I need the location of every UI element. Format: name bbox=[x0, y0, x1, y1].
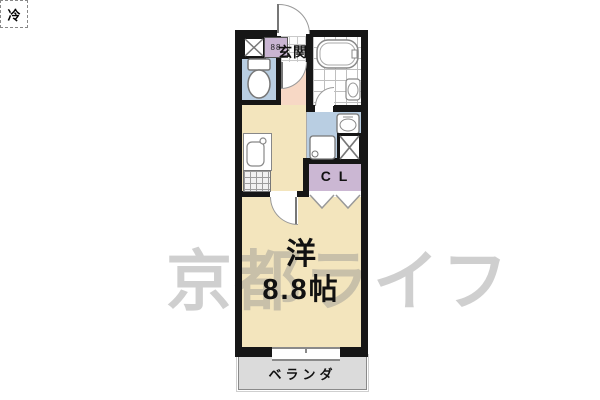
closet-label: C L bbox=[309, 168, 361, 184]
veranda: ベランダ bbox=[238, 356, 367, 390]
wall-bottom-right bbox=[340, 347, 368, 357]
mainroom-door-leaf bbox=[295, 197, 297, 224]
closet-folding-door-icon bbox=[309, 194, 361, 210]
front-door-swing-arc bbox=[279, 4, 310, 34]
main-room-type: 洋 bbox=[241, 238, 361, 272]
vanity-sink-icon bbox=[336, 113, 360, 135]
pipe-space-entry-icon bbox=[242, 36, 266, 59]
pipe-space-washroom-icon bbox=[337, 133, 362, 162]
wall-top-right bbox=[310, 30, 368, 37]
toilet-icon bbox=[244, 58, 274, 100]
refrigerator-space: 冷 bbox=[0, 0, 28, 28]
genkan-label: 玄関 bbox=[278, 42, 308, 62]
wall-toilet-bottom bbox=[241, 100, 281, 105]
bathtub-icon bbox=[316, 39, 359, 69]
wall-right bbox=[361, 30, 368, 357]
wall-bottom-left bbox=[235, 347, 272, 357]
bath-washbasin-icon bbox=[345, 78, 361, 101]
kitchen-sink-unit bbox=[243, 133, 272, 171]
toilet-door-leaf bbox=[281, 62, 283, 88]
main-room-size: 8.8帖 bbox=[241, 272, 361, 308]
veranda-label: ベランダ bbox=[268, 364, 336, 383]
main-room-label: 洋 8.8帖 bbox=[241, 238, 361, 308]
wall-mainroom-top-right bbox=[297, 191, 309, 197]
stove-icon bbox=[243, 170, 271, 192]
floorplan-canvas: 京都ライフ 88 bbox=[0, 0, 600, 400]
front-door-leaf bbox=[277, 4, 279, 33]
sink-basin-icon bbox=[244, 134, 271, 170]
window-center-tick bbox=[305, 349, 307, 353]
washer-pan-icon bbox=[309, 135, 336, 160]
mainroom-window bbox=[272, 347, 340, 361]
bathroom-door-opening bbox=[315, 105, 333, 112]
